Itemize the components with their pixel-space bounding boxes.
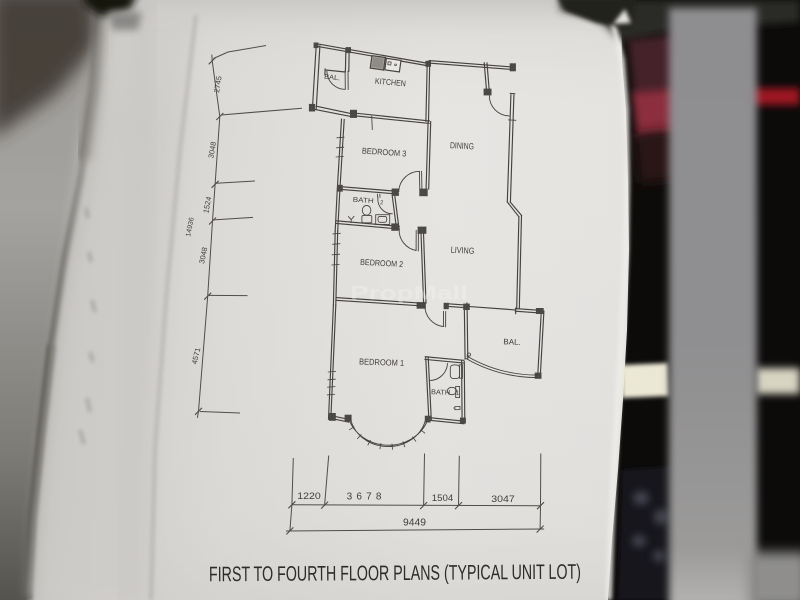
- svg-text:9449: 9449: [403, 517, 426, 528]
- svg-text:1: 1: [456, 390, 460, 397]
- svg-text:BATH: BATH: [352, 197, 374, 205]
- svg-text:2: 2: [380, 200, 384, 206]
- svg-text:3047: 3047: [491, 494, 515, 505]
- svg-text:1504: 1504: [432, 493, 454, 504]
- svg-text:BAL.: BAL.: [503, 337, 521, 347]
- svg-text:BATH: BATH: [431, 389, 450, 397]
- svg-text:3678: 3678: [347, 492, 386, 503]
- svg-text:FIRST TO FOURTH FLOOR PLANS (T: FIRST TO FOURTH FLOOR PLANS (TYPICAL UNI…: [209, 561, 581, 587]
- svg-text:1220: 1220: [297, 491, 321, 502]
- svg-text:LIVING: LIVING: [451, 245, 475, 256]
- svg-text:PropMall: PropMall: [350, 284, 468, 305]
- svg-text:BEDROOM 1: BEDROOM 1: [359, 356, 405, 368]
- svg-text:DINING: DINING: [450, 140, 475, 151]
